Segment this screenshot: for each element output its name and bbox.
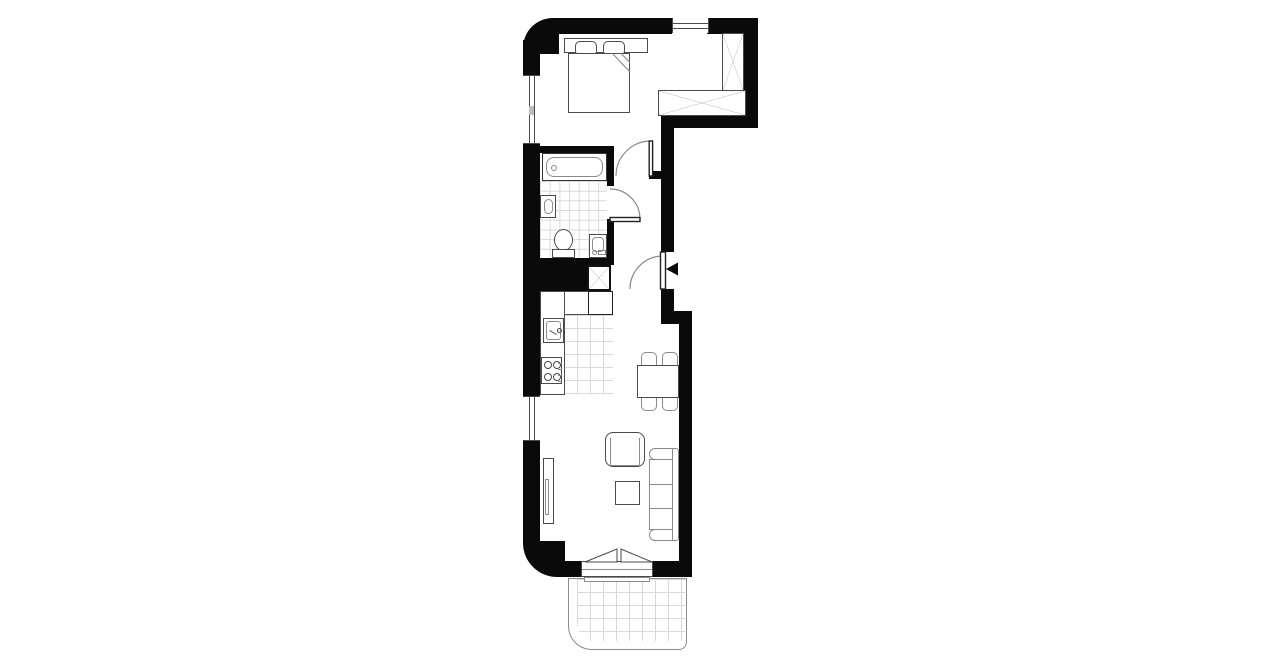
- bathtub: [542, 153, 607, 181]
- balcony-door-sill: [584, 577, 650, 582]
- coffee-table: [615, 481, 640, 505]
- sofa-cushions: [649, 459, 673, 530]
- bathtub-drain: [551, 165, 557, 171]
- fridge: [588, 291, 613, 315]
- wall-bathroom-bottom: [540, 258, 614, 265]
- kitchen-floor-tiles: [564, 315, 613, 395]
- window-frame-line: [529, 397, 535, 440]
- wall-step-upper: [661, 115, 758, 128]
- window-frame-line: [673, 23, 708, 29]
- wall-bottom-a: [556, 561, 583, 577]
- tv-unit: [543, 458, 554, 524]
- entrance-triangle-marker: [666, 263, 678, 276]
- armchair-seat: [610, 438, 640, 466]
- wall-left-b: [523, 142, 540, 259]
- wardrobe-tall-x: [722, 33, 744, 91]
- bedroom-door-arc: [616, 141, 651, 176]
- washing-machine-knob: [592, 250, 597, 255]
- bathroom-sink: [540, 195, 556, 218]
- burner-icon: [544, 373, 552, 381]
- balcony-door-frame-line: [582, 569, 652, 570]
- armchair: [605, 432, 645, 467]
- wall-bedroom-bottom: [540, 146, 614, 153]
- oven-tick: [558, 363, 562, 364]
- sofa-cushion-divider: [650, 508, 672, 509]
- duct-shaft-x: [587, 265, 611, 291]
- wardrobe-x-icon: [723, 34, 743, 90]
- toilet-tank: [552, 249, 575, 258]
- faucet-icon: [557, 328, 562, 333]
- oven-tick: [558, 369, 562, 370]
- bathroom-door-leaf: [610, 218, 640, 222]
- balcony-outline: [568, 578, 687, 650]
- entrance-door-arc: [630, 256, 663, 289]
- bed-body: [568, 53, 630, 113]
- washing-machine-panel: [598, 250, 606, 255]
- window-top: [672, 18, 709, 33]
- wall-bedroom-door-stub: [649, 171, 661, 179]
- balcony-door-threshold: [581, 561, 653, 577]
- balcony-floor-tiles: [577, 579, 685, 641]
- entrance-door-leaf: [661, 252, 666, 289]
- wall-left-d: [523, 439, 540, 544]
- wall-right-low: [679, 311, 692, 577]
- tv-screen: [545, 479, 549, 515]
- kitchen-sink: [543, 318, 564, 343]
- window-kitchen-left: [523, 396, 540, 441]
- oven-tick: [558, 381, 562, 382]
- wardrobe-x-icon: [659, 91, 745, 115]
- wardrobe-wide-x: [658, 90, 746, 116]
- stove: [541, 357, 562, 384]
- bathroom-door-arc: [610, 189, 640, 219]
- burner-icon: [544, 361, 552, 369]
- sink-basin: [544, 199, 553, 214]
- window-latch: [529, 106, 534, 115]
- window-bedroom-left: [523, 75, 540, 144]
- sofa-cushion-divider: [650, 484, 672, 485]
- wall-right-top: [744, 18, 758, 128]
- shaft-x-icon: [589, 267, 609, 289]
- toilet-bowl: [554, 229, 573, 251]
- washing-machine: [589, 234, 607, 258]
- oven-tick: [558, 375, 562, 376]
- wall-mid-right-a: [661, 128, 674, 252]
- wall-left-a: [523, 40, 540, 77]
- wall-top-a: [552, 18, 672, 34]
- floor-plan-canvas: [0, 0, 1280, 667]
- dining-table: [637, 365, 679, 398]
- wall-bottom-b: [653, 561, 692, 577]
- wall-bathroom-right-upper: [607, 146, 614, 186]
- wall-left-c: [523, 291, 540, 398]
- sofa-armrest-bottom: [649, 529, 673, 541]
